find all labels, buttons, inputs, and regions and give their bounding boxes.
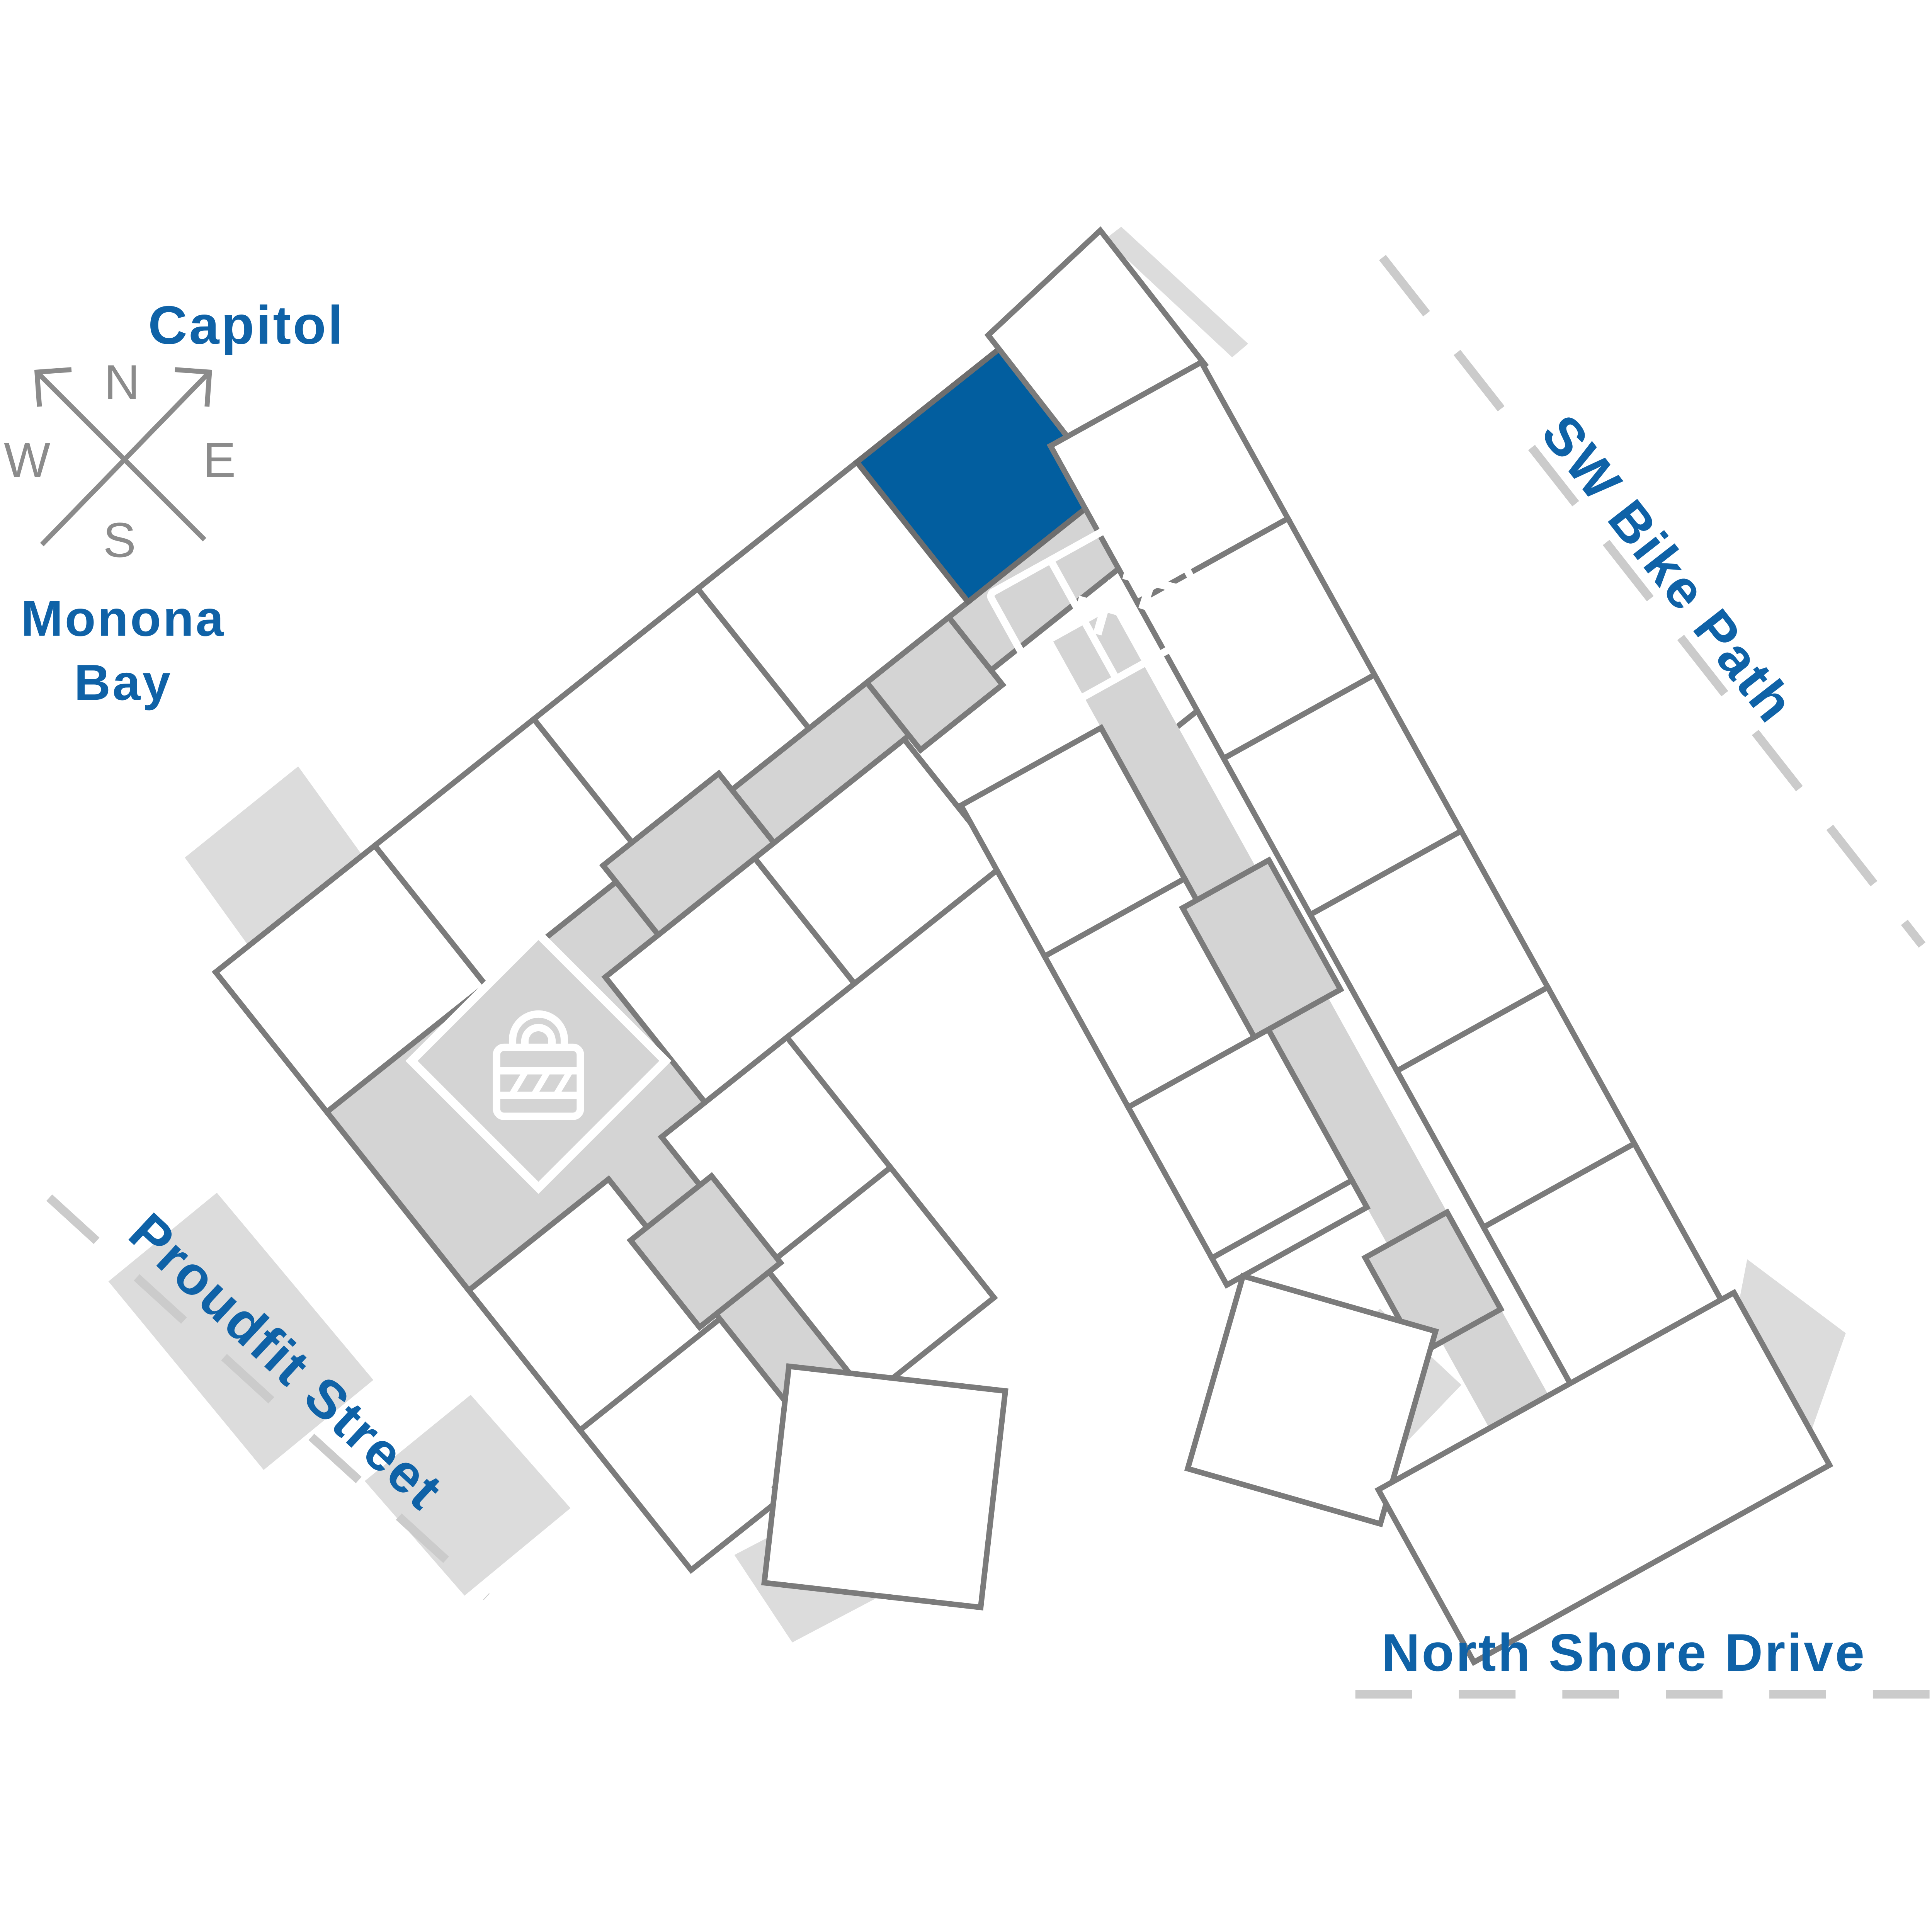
compass-n: N (104, 355, 140, 410)
compass-s: S (103, 513, 136, 568)
compass-w: W (4, 433, 50, 488)
monona-bay-label-line1: Monona (21, 590, 226, 646)
capitol-label: Capitol (148, 295, 345, 355)
north-shore-drive-label: North Shore Drive (1382, 1623, 1867, 1682)
monona-bay-label-line2: Bay (74, 654, 172, 711)
sw-bike-path-label: SW Bike Path (1530, 404, 1807, 734)
site-plan-map: Capitol Monona Bay SW Bike Path Proudfit… (0, 0, 1932, 1932)
compass-e: E (203, 433, 236, 488)
compass-rose-icon: N W E S (4, 355, 236, 568)
proudfit-street-label: Proudfit Street (118, 1201, 455, 1521)
